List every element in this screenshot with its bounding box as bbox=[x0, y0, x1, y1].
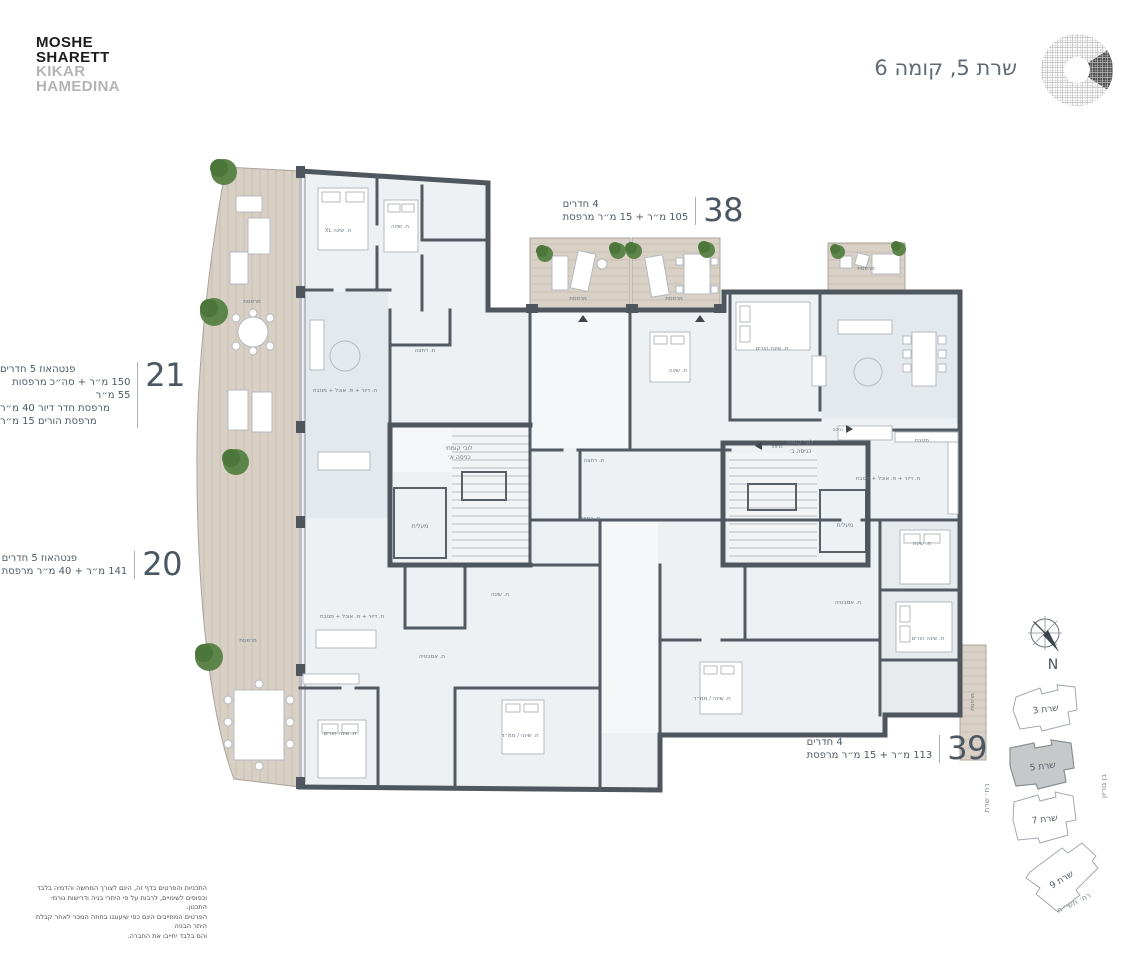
tree-icon bbox=[195, 643, 223, 671]
room-label: ח. שינה bbox=[913, 541, 931, 547]
room-label: ח. שינה bbox=[491, 592, 509, 598]
room-label: מעלית bbox=[837, 522, 854, 529]
room-label: מרפסת bbox=[239, 638, 257, 644]
divider bbox=[137, 362, 138, 428]
text-line: 113 מ״ר + 15 מ״ר מרפסת bbox=[807, 749, 933, 762]
text-line: הפרטים המחייבים הינם כפי שיעוגנו בחוזה ה… bbox=[35, 913, 207, 932]
text-line: 105 מ״ר + 15 מ״ר מרפסת bbox=[563, 211, 689, 224]
room-label: כניסה א׳ bbox=[447, 454, 470, 461]
site-label-sharett-9: שרת 9 bbox=[1048, 869, 1075, 891]
brand-ring-icon bbox=[1039, 32, 1122, 108]
text-line: 4 חדרים bbox=[807, 736, 843, 749]
text-line: מרפסת חדר דיור 40 מ״ר bbox=[0, 402, 110, 415]
text-line: פנטהאוז 5 חדרים bbox=[2, 552, 77, 565]
text-line: פנטהאוז 5 חדרים bbox=[0, 363, 75, 376]
text-line: התכניות והפרטים בדף זה, הינם לצורך המחשה… bbox=[35, 884, 207, 894]
site-label-sharett-7: שרת 7 bbox=[1031, 813, 1058, 826]
stairs bbox=[729, 453, 817, 557]
room-label: מרפסת bbox=[857, 266, 875, 272]
room-label: ח. רחצה bbox=[415, 348, 436, 354]
compass: N bbox=[1028, 616, 1062, 673]
apartment-info: 4 חדרים105 מ״ר + 15 מ״ר מרפסת bbox=[563, 195, 689, 225]
street-label-left: רח׳ שרת bbox=[982, 783, 991, 812]
apartment-callout-20: פנטהאוז 5 חדרים141 מ״ר + 40 מ״ר מרפסת 20 bbox=[2, 549, 182, 579]
text-line: 4 חדרים bbox=[563, 198, 599, 211]
apartment-number: 39 bbox=[947, 733, 987, 763]
street-label-bottom: רח׳ תשי״ח bbox=[1056, 891, 1093, 915]
text-line: מרפסת הורים 15 מ״ר bbox=[0, 415, 97, 428]
apartment-callout-38: 4 חדרים105 מ״ר + 15 מ״ר מרפסת 38 bbox=[563, 195, 743, 225]
apartment-number: 20 bbox=[142, 549, 182, 579]
page-title: שרת 5, קומה 6 bbox=[874, 56, 1017, 80]
room-label: מרפסת bbox=[569, 296, 587, 302]
divider bbox=[695, 197, 696, 225]
compass-needle-tail bbox=[1034, 622, 1045, 633]
room-label: ח. אמבטיה bbox=[419, 654, 445, 660]
room-label: ח. שינה / ממ״ד bbox=[693, 696, 731, 702]
street-label-right: בן גוריון bbox=[1099, 773, 1108, 798]
room-label: ח. שינה bbox=[391, 224, 409, 230]
room-label: מרפסת bbox=[970, 693, 976, 711]
site-label-sharett-3: שרת 3 bbox=[1032, 703, 1059, 716]
room-label: לובי קומתי bbox=[786, 439, 813, 446]
apartment-callout-21: פנטהאוז 5 חדרים150 מ״ר + סה״כ מרפסות 55 … bbox=[0, 360, 185, 428]
room-label: ח. דיור + פ. אוכל + מטבח bbox=[320, 613, 385, 620]
room-label: ח. רחצה bbox=[580, 516, 601, 522]
apartment-info: 4 חדרים113 מ״ר + 15 מ״ר מרפסת bbox=[807, 733, 933, 763]
north-label: N bbox=[1048, 657, 1058, 673]
apartment-callout-39: 4 חדרים113 מ״ר + 15 מ״ר מרפסת 39 bbox=[807, 733, 987, 763]
room-label: לובי קומתי bbox=[445, 445, 472, 452]
room-label: מעלית bbox=[412, 523, 429, 530]
divider bbox=[939, 735, 940, 763]
room-label: ח. דיור + פ. אוכל + מטבח bbox=[313, 387, 378, 394]
room-label: ח. רחצה bbox=[584, 458, 605, 464]
room-label: ח. שינה XL bbox=[325, 228, 352, 234]
room-label: מרפסת bbox=[665, 296, 683, 302]
tree-icon bbox=[210, 159, 237, 185]
text-line: והם בלבד יחייבו את החברה. bbox=[35, 932, 207, 942]
brand-line: HAMEDINA bbox=[36, 80, 120, 95]
room-label: מרפסת bbox=[243, 299, 261, 305]
text-line: 141 מ״ר + 40 מ״ר מרפסת bbox=[2, 565, 128, 578]
floor-plan-canvas: ח. שינה XLח. שינהמרפסתמרפסתח. דיור + פ. … bbox=[0, 0, 1148, 956]
disclaimer: התכניות והפרטים בדף זה, הינם לצורך המחשה… bbox=[35, 884, 207, 942]
text-line: וכפופים לשינויים, לרבות על פי היתרי בניה… bbox=[35, 894, 207, 913]
room-label: ח. שינה / ממ״ד bbox=[501, 733, 539, 739]
text-line: 150 מ״ר + סה״כ מרפסות 55 מ״ר bbox=[0, 376, 130, 402]
site-plan: שרת 3 שרת 5 שרת 7 שרת 9 רח׳ שרת בן גוריו… bbox=[982, 685, 1108, 915]
room-label: ח. שינה הורים bbox=[912, 636, 945, 642]
room-label: ח. אמבטיה bbox=[835, 600, 861, 606]
room-label: ח. שינה הורים bbox=[324, 731, 357, 737]
room-label: כניסה bbox=[832, 428, 844, 433]
room-label: ח. דיור + פ. אוכל + מטבח bbox=[856, 475, 921, 482]
apartment-info: פנטהאוז 5 חדרים141 מ״ר + 40 מ״ר מרפסת bbox=[2, 549, 128, 579]
apartment-number: 21 bbox=[145, 360, 185, 428]
room-label: ח. שינה הורים bbox=[756, 346, 789, 352]
tree-icon bbox=[200, 298, 228, 326]
divider bbox=[134, 551, 135, 579]
room-label: כניסה ב׳ bbox=[789, 448, 812, 455]
apartment-number: 38 bbox=[703, 195, 743, 225]
apartment-info: פנטהאוז 5 חדרים150 מ״ר + סה״כ מרפסות 55 … bbox=[0, 360, 130, 428]
room-label: כניסה bbox=[771, 445, 783, 450]
room-label: מטבח bbox=[915, 438, 929, 444]
brand-logo: MOSHE SHARETT KIKAR HAMEDINA bbox=[36, 36, 120, 94]
room-label: ח. שינה bbox=[669, 368, 687, 374]
